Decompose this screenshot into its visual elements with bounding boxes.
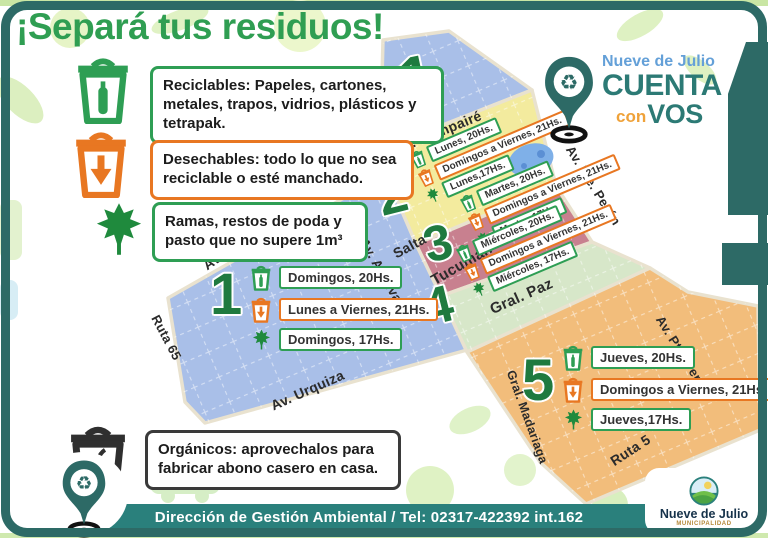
zone-1-number-west: 1	[210, 266, 242, 324]
brand-con: con	[616, 108, 646, 125]
zone-5-schedule: Jueves, 20Hs. Domingos a Viernes, 21Hs. …	[560, 344, 768, 436]
trash-bin-icon	[248, 296, 274, 323]
legend-reciclables: Reciclables: Papeles, cartones, metales,…	[150, 66, 444, 144]
recycle-pin-icon	[540, 54, 598, 144]
leaf-icon	[560, 409, 586, 430]
footer-bar: Dirección de Gestión Ambiental / Tel: 02…	[84, 504, 654, 531]
schedule-row: Domingos, 20Hs.	[248, 264, 438, 291]
recycle-bin-icon	[72, 54, 134, 129]
schedule-label: Domingos, 17Hs.	[279, 328, 402, 351]
poster: ♻	[0, 0, 768, 538]
legend-desechables: Desechables: todo lo que no sea reciclab…	[150, 140, 414, 200]
schedule-label: Domingos a Viernes, 21Hs.	[591, 378, 768, 401]
legend-organicos: Orgánicos: aprovechalos para fabricar ab…	[145, 430, 401, 490]
schedule-row: Jueves,17Hs.	[560, 408, 768, 431]
recycle-pin-icon	[58, 458, 110, 538]
zone-1-schedule: Domingos, 20Hs. Lunes a Viernes, 21Hs. D…	[248, 264, 438, 356]
brand-region: Nueve de Julio	[602, 54, 722, 70]
frame-tab-bottom	[722, 243, 768, 285]
municipality-logo: Nueve de Julio MUNICIPALIDAD	[645, 468, 763, 534]
municipality-name: Nueve de Julio	[660, 507, 748, 521]
leaf-icon	[248, 329, 274, 350]
legend-ramas: Ramas, restos de poda y pasto que no sup…	[152, 202, 368, 262]
recycle-bin-icon	[560, 344, 586, 371]
schedule-label: Jueves,17Hs.	[591, 408, 691, 431]
trash-bin-icon	[70, 128, 132, 203]
schedule-row: Jueves, 20Hs.	[560, 344, 768, 371]
leaf-icon	[94, 202, 144, 261]
schedule-row: Lunes a Viernes, 21Hs.	[248, 296, 438, 323]
schedule-row: Domingos, 17Hs.	[248, 328, 438, 351]
schedule-row: Domingos a Viernes, 21Hs.	[560, 376, 768, 403]
schedule-label: Domingos, 20Hs.	[279, 266, 402, 289]
schedule-label: Jueves, 20Hs.	[591, 346, 695, 369]
brand-cuenta: CUENTA	[602, 71, 722, 101]
recycle-bin-icon	[248, 264, 274, 291]
brand-vos: VOS	[647, 101, 703, 128]
schedule-label: Lunes a Viernes, 21Hs.	[279, 298, 438, 321]
campaign-logo: Nueve de Julio CUENTA con VOS	[540, 54, 722, 144]
trash-bin-icon	[560, 376, 586, 403]
page-title: ¡Separá tus residuos!	[16, 6, 384, 48]
municipality-subtitle: MUNICIPALIDAD	[676, 521, 731, 527]
municipality-emblem-icon	[689, 476, 719, 506]
